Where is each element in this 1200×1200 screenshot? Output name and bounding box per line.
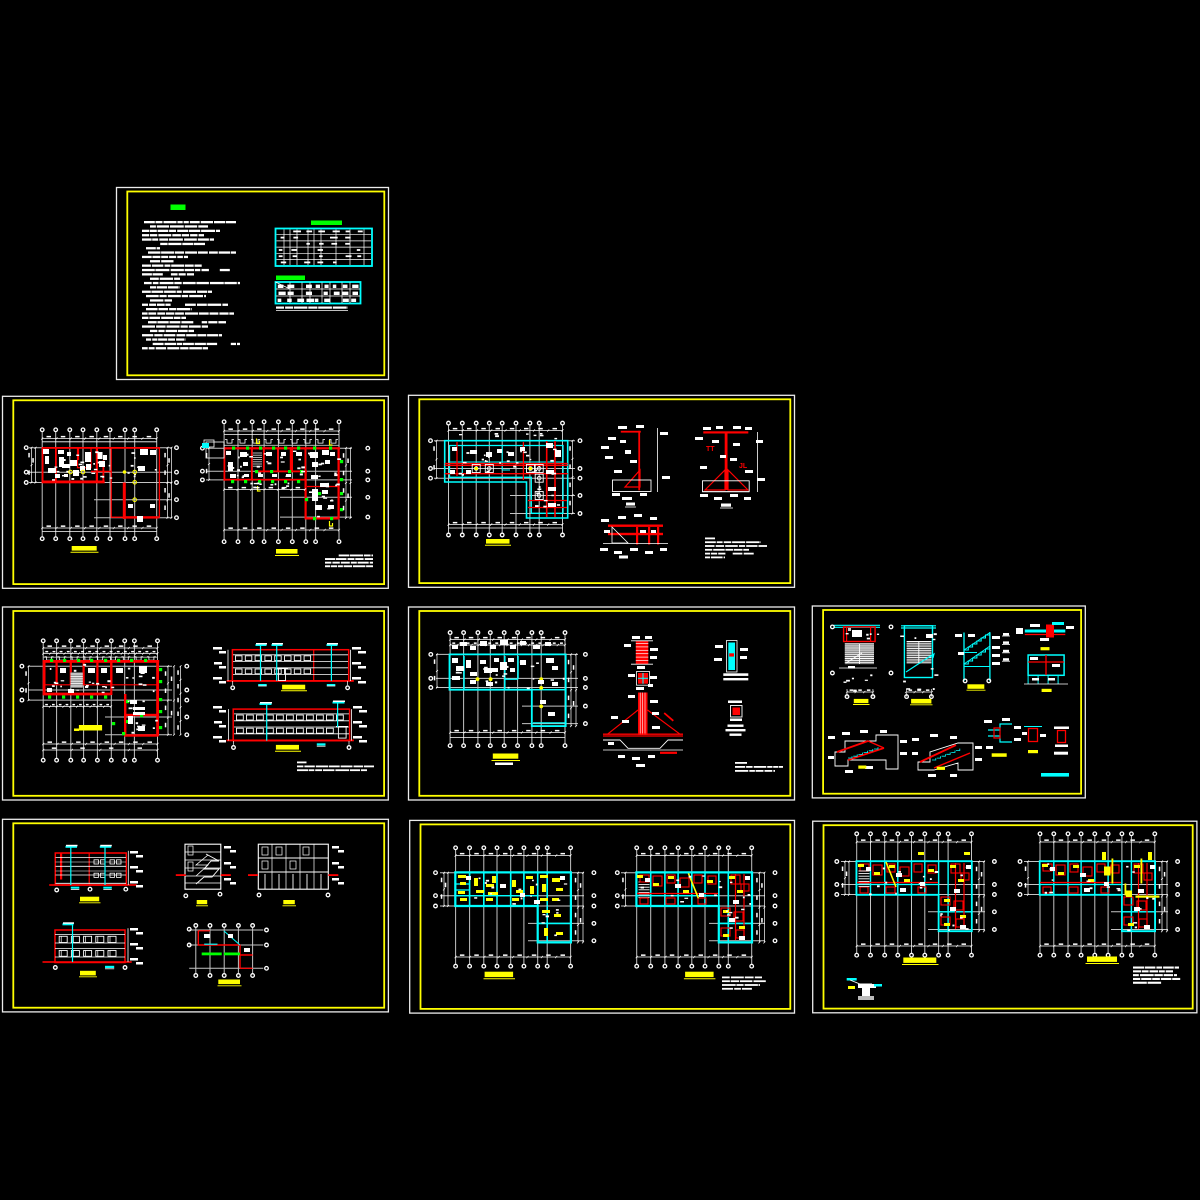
svg-text:JL: JL: [739, 463, 748, 470]
svg-text:TT: TT: [706, 446, 715, 453]
